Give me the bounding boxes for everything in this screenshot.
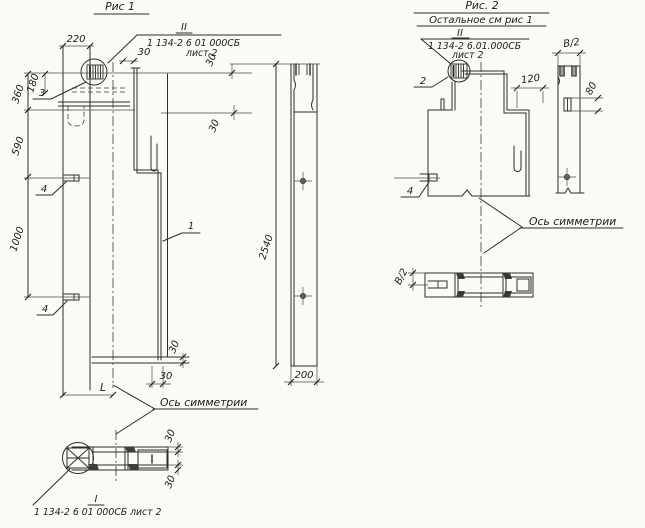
crosshair-hole bbox=[558, 168, 576, 186]
fig1-callout-bottom: I 1 134-2 6 01 000СБ лист 2 bbox=[33, 469, 162, 518]
dim-80: 80 bbox=[584, 81, 600, 97]
dim-B2-top: В/2 bbox=[563, 37, 581, 50]
weld-mark bbox=[125, 447, 136, 452]
fig1-detail-roman: II bbox=[181, 22, 187, 33]
technical-drawing: Рис 1 II 1 134-2 6 01 000СБ лист 2 bbox=[0, 0, 645, 528]
fig1-part-labels: 3 4 4 1 bbox=[33, 82, 200, 315]
weld-mark bbox=[456, 291, 465, 297]
fig2-title: Рис. 2 bbox=[465, 0, 498, 12]
fig1-plan-view: 30 30 bbox=[63, 428, 184, 490]
dim-120: 120 bbox=[520, 73, 540, 87]
weld-hatch-fig1 bbox=[87, 65, 103, 79]
dim-200: 200 bbox=[294, 370, 313, 381]
part-label-4b: 4 bbox=[42, 304, 48, 315]
weld-mark bbox=[456, 273, 465, 279]
dim-220: 220 bbox=[66, 34, 85, 45]
crosshair-hole bbox=[294, 172, 312, 190]
fig1: Рис 1 II 1 134-2 6 01 000СБ лист 2 bbox=[8, 0, 324, 518]
dim-30-top: 30 bbox=[138, 47, 151, 58]
fig1-callout-top: II 1 134-2 6 01 000СБ лист 2 bbox=[108, 22, 281, 63]
fig2: Рис. 2 Остальное см рис 1 II 1 134-2 6.0… bbox=[393, 0, 623, 310]
part-label-4: 4 bbox=[41, 184, 47, 195]
fig1-detail1-doc: 1 134-2 6 01 000СБ лист 2 bbox=[34, 507, 162, 518]
dim-2540: 2540 bbox=[257, 233, 275, 261]
part-label-2: 2 bbox=[420, 76, 426, 87]
fig1-header: Рис 1 bbox=[94, 0, 149, 14]
fig2-subtitle: Остальное см рис 1 bbox=[429, 15, 533, 26]
hook-rod bbox=[151, 136, 157, 171]
dim-1000: 1000 bbox=[8, 225, 26, 253]
fig2-header: Рис. 2 Остальное см рис 1 bbox=[414, 0, 549, 26]
tab-bracket-lower bbox=[24, 294, 90, 300]
fig2-plan-view: В/2 bbox=[393, 256, 533, 310]
fig2-axis-text: Ось симметрии bbox=[529, 215, 616, 228]
drawing-sheet: Рис 1 II 1 134-2 6 01 000СБ лист 2 bbox=[0, 0, 645, 528]
dim-B2-plan: В/2 bbox=[393, 267, 411, 287]
top-notches bbox=[296, 64, 310, 75]
dim-30-bottom: 30 bbox=[160, 371, 173, 382]
fig2-front-view: 120 2 4 bbox=[394, 60, 549, 252]
weld-mark bbox=[503, 273, 512, 279]
part-label-3: 3 bbox=[39, 88, 45, 99]
dim-360: 360 bbox=[10, 83, 26, 105]
tab-bracket-upper bbox=[24, 175, 90, 181]
fig2-detail-sheet: лист 2 bbox=[451, 50, 483, 61]
fig1-axis-label: Ось симметрии bbox=[113, 385, 258, 434]
plan-left-bracket bbox=[428, 281, 447, 288]
part-label-1: 1 bbox=[188, 221, 194, 232]
fig1-axis-text: Ось симметрии bbox=[160, 396, 247, 409]
fig2-axis-label: Ось симметрии bbox=[479, 198, 623, 253]
fig2-detail-roman: II bbox=[457, 28, 463, 39]
hidden-cup bbox=[68, 106, 84, 126]
part-label-4-fig2: 4 bbox=[407, 186, 413, 197]
dim-30-plan-top: 30 bbox=[163, 428, 178, 444]
fig2-callout-top: II 1 134-2 6.01.000СБ лист 2 bbox=[421, 28, 529, 64]
top-tab-fig2 bbox=[441, 99, 444, 110]
end-square bbox=[67, 448, 89, 468]
fig1-detail1-roman: I bbox=[95, 494, 98, 505]
section-top-notches bbox=[560, 66, 576, 76]
fig1-front-view bbox=[24, 46, 252, 396]
fig1-side-view: 2540 200 bbox=[230, 61, 324, 386]
hook-rod-fig2 bbox=[514, 146, 521, 172]
fig2-section-view: В/2 80 bbox=[552, 37, 603, 193]
dim-30-right-mid: 30 bbox=[207, 118, 222, 134]
weld-mark bbox=[503, 291, 512, 297]
tab-bracket-fig2 bbox=[394, 174, 440, 181]
fig1-title: Рис 1 bbox=[105, 0, 135, 13]
dim-590: 590 bbox=[10, 135, 26, 157]
dim-L: L bbox=[100, 381, 106, 394]
dim-30-plan-bottom: 30 bbox=[163, 474, 178, 490]
dim-30-flange: 30 bbox=[167, 339, 182, 355]
crosshair-hole bbox=[294, 287, 312, 305]
break-line-fig2 bbox=[428, 190, 530, 196]
